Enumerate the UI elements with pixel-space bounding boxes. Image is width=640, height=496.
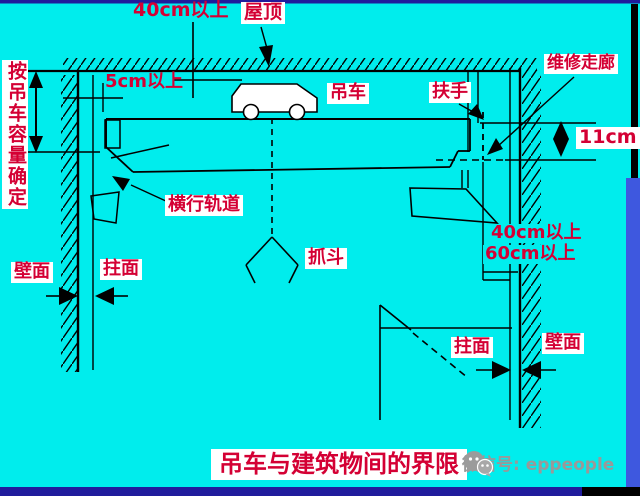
- slide: 40cm以上 屋顶 按吊车容量确定 5cm以上 吊车 扶手 维修走廊 11cm …: [0, 0, 640, 496]
- label-clearance-40cm: 40cm以上: [489, 224, 583, 243]
- crane-girder: [91, 119, 470, 223]
- left-wall-hatching: [61, 75, 77, 372]
- right-edge-black-bar: [631, 4, 638, 178]
- right-edge-blue-bar: [626, 178, 640, 487]
- label-clearance-60cm: 60cm以上: [483, 245, 577, 264]
- label-traverse-track: 横行轨道: [165, 195, 243, 216]
- label-gap-11cm: 11cm: [576, 127, 640, 149]
- label-roof: 屋顶: [241, 2, 285, 24]
- dimension-diamond-11cm: [553, 121, 569, 157]
- label-wall-left: 壁面: [11, 262, 53, 283]
- wechat-icon: [462, 450, 494, 478]
- column-right-arrowhead: [492, 361, 511, 379]
- runway-rail: [105, 120, 120, 148]
- grab-bucket-shape: [246, 237, 298, 283]
- label-crane: 吊车: [327, 83, 369, 104]
- column-left-arrowhead: [95, 287, 114, 305]
- label-capacity-note: 按吊车容量确定: [2, 60, 28, 209]
- roof-hatching: [63, 58, 537, 71]
- bottom-bar-black: [582, 487, 640, 496]
- track-arrowhead: [112, 176, 130, 191]
- corridor-arrowhead: [487, 138, 503, 155]
- handrail-arrowhead: [468, 104, 484, 120]
- crane-trolley: [232, 84, 317, 237]
- label-grab-bucket: 抓斗: [305, 248, 347, 269]
- label-wall-right: 壁面: [542, 333, 584, 354]
- trolley-wheel: [244, 105, 259, 120]
- trolley-wheel: [290, 105, 305, 120]
- label-column-right: 拄面: [451, 337, 493, 358]
- bottom-bar-navy: [0, 487, 582, 496]
- label-top-clearance: 40cm以上: [133, 1, 229, 21]
- label-handrail: 扶手: [429, 82, 471, 103]
- runway-bracket: [91, 192, 119, 223]
- page-title: 吊车与建筑物间的界限: [211, 449, 467, 480]
- top-edge-bar: [0, 0, 640, 4]
- label-maintenance-corridor: 维修走廊: [544, 54, 618, 74]
- label-side-clearance-5cm: 5cm以上: [105, 73, 183, 92]
- label-column-left: 拄面: [100, 259, 142, 280]
- watermark: 微信号: eppeople: [462, 450, 614, 475]
- left-wall: [61, 71, 93, 372]
